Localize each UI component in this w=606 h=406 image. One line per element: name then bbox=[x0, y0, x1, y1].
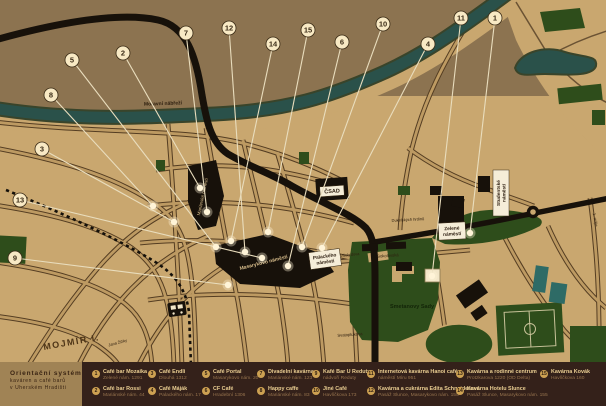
legend-item-name: Kafé Bar U Reduty bbox=[323, 369, 370, 376]
legend-item-name: Café bar Rossi bbox=[103, 386, 145, 393]
destination-dot-12 bbox=[242, 249, 248, 255]
legend-item: 7Divadelní kavárnaMariánské nám. 123 bbox=[257, 369, 314, 382]
destination-dot-14 bbox=[228, 238, 234, 244]
map-marker-15: 15 bbox=[301, 23, 315, 37]
legend-item-address: Havlíčkova 160 bbox=[551, 376, 590, 382]
map-marker-7: 7 bbox=[179, 26, 193, 40]
poster-title-line3: v Uherském Hradišti bbox=[10, 385, 82, 392]
street-label: Smetanovy Sady bbox=[390, 304, 435, 310]
legend-item-number-badge: 3 bbox=[148, 370, 156, 378]
legend-item-name: Kavárna a rodinné centrum bbox=[467, 369, 537, 376]
legend-item: 10Jiné CaféHavlíčkova 173 bbox=[312, 386, 356, 399]
legend-item-number-badge: 11 bbox=[367, 370, 375, 378]
legend-item-address: Mariánské nám. 83 bbox=[268, 393, 310, 399]
destination-dot-13 bbox=[259, 255, 265, 261]
svg-text:11: 11 bbox=[457, 14, 465, 23]
legend-item-address: Masarykovo nám. 20 bbox=[213, 376, 258, 382]
legend-item-number-badge: 2 bbox=[92, 387, 100, 395]
legend-item: 2Café bar RossiMariánské nám. 44 bbox=[92, 386, 145, 399]
roundabout bbox=[529, 208, 538, 217]
svg-text:3: 3 bbox=[40, 145, 44, 154]
svg-text:5: 5 bbox=[70, 56, 74, 65]
destination-dot-9 bbox=[225, 282, 231, 288]
legend-item-name: Happy caffe bbox=[268, 386, 310, 393]
legend-item-number-badge: 7 bbox=[257, 370, 265, 378]
svg-text:15: 15 bbox=[304, 26, 312, 35]
map-marker-14: 14 bbox=[266, 37, 280, 51]
legend-item: 1Café bar MozaikaZelené nám. 1291 bbox=[92, 369, 147, 382]
legend-item: 4Café MájákPalackého nám. 17 bbox=[148, 386, 201, 399]
svg-text:8: 8 bbox=[49, 91, 53, 100]
legend-item-name: Café Portal bbox=[213, 369, 258, 376]
legend-item-address: Palackého nám. 17 bbox=[159, 393, 201, 399]
legend-item: 9Kafé Bar U Redutynádvoří Reduty bbox=[312, 369, 370, 382]
place-label-box: Zelenénáměstí bbox=[438, 222, 466, 240]
legend-item-name: Divadelní kavárna bbox=[268, 369, 314, 376]
map-canvas: Moravní nábřežíMOJMÍR I.Smetanovy SadySo… bbox=[0, 0, 606, 362]
destination-dot-4 bbox=[319, 245, 325, 251]
legend-item-number-badge: 5 bbox=[202, 370, 210, 378]
legend-item: 11Internetová kavárna Hanoi cafénáměstí … bbox=[367, 369, 458, 382]
destination-dot-8 bbox=[150, 203, 156, 209]
map-area: Moravní nábřežíMOJMÍR I.Smetanovy SadySo… bbox=[0, 0, 606, 362]
legend-item: 6CF CaféHradební 1306 bbox=[202, 386, 245, 399]
legend-item-number-badge: 12 bbox=[367, 387, 375, 395]
legend-item-address: Hradební 1306 bbox=[213, 393, 245, 399]
map-marker-1: 1 bbox=[488, 11, 502, 25]
legend-item-name: Café Máják bbox=[159, 386, 201, 393]
map-marker-2: 2 bbox=[116, 46, 130, 60]
map-marker-8: 8 bbox=[44, 88, 58, 102]
running-track bbox=[425, 324, 493, 362]
legend-item-address: Dlouhá 1312 bbox=[159, 376, 187, 382]
svg-text:Studentské: Studentské bbox=[496, 180, 502, 206]
svg-text:náměstí: náměstí bbox=[443, 231, 462, 238]
legend-item: 15Kavárna KovákHavlíčkova 160 bbox=[540, 369, 590, 382]
legend-item: 5Café PortalMasarykovo nám. 20 bbox=[202, 369, 258, 382]
map-marker-4: 4 bbox=[421, 37, 435, 51]
legend-item: 8Happy caffeMariánské nám. 83 bbox=[257, 386, 310, 399]
svg-text:10: 10 bbox=[379, 20, 387, 29]
legend-item-number-badge: 4 bbox=[148, 387, 156, 395]
legend-item-address: náměstí Míru 951 bbox=[378, 376, 458, 382]
svg-text:ČSAD: ČSAD bbox=[324, 187, 340, 195]
legend-item-number-badge: 10 bbox=[312, 387, 320, 395]
place-label-box: Studentskénáměstí bbox=[493, 170, 509, 216]
legend-item-name: CF Café bbox=[213, 386, 245, 393]
legend-item-address: Zelené nám. 1291 bbox=[103, 376, 147, 382]
legend-item-number-badge: 1 bbox=[92, 370, 100, 378]
legend-item-address: Havlíčkova 173 bbox=[323, 393, 356, 399]
legend-item-address: Pasáž Slunce, Masarykovo nám. 155 bbox=[467, 393, 548, 399]
destination-dot-11 bbox=[429, 273, 435, 279]
legend-item-address: nádvoří Reduty bbox=[323, 376, 370, 382]
legend-item-number-badge: 15 bbox=[540, 370, 548, 378]
legend-item: 14Kavárna Hotelu SluncePasáž Slunce, Mas… bbox=[456, 386, 548, 399]
destination-dot-2 bbox=[197, 185, 203, 191]
svg-text:13: 13 bbox=[16, 196, 24, 205]
legend-item-name: Kavárna Hotelu Slunce bbox=[467, 386, 548, 393]
destination-dot-1 bbox=[467, 230, 473, 236]
svg-text:9: 9 bbox=[13, 254, 17, 263]
svg-text:7: 7 bbox=[184, 29, 188, 38]
legend-item-number-badge: 14 bbox=[456, 387, 464, 395]
map-marker-12: 12 bbox=[222, 21, 236, 35]
map-marker-3: 3 bbox=[35, 142, 49, 156]
legend-item-address: Mariánské nám. 44 bbox=[103, 393, 145, 399]
map-marker-9: 9 bbox=[8, 251, 22, 265]
svg-text:12: 12 bbox=[225, 24, 233, 33]
map-marker-11: 11 bbox=[454, 11, 468, 25]
legend-item: 3Café EndliDlouhá 1312 bbox=[148, 369, 187, 382]
legend-item-address: Protzkarova 1220 (OD Delta) bbox=[467, 376, 537, 382]
destination-dot-15 bbox=[265, 229, 271, 235]
map-marker-13: 13 bbox=[13, 193, 27, 207]
legend-item-name: Internetová kavárna Hanoi café bbox=[378, 369, 458, 376]
legend-item-address: Mariánské nám. 123 bbox=[268, 376, 314, 382]
poster-title-line2: kaváren a café barů bbox=[10, 378, 82, 385]
map-marker-6: 6 bbox=[335, 35, 349, 49]
svg-text:2: 2 bbox=[121, 49, 125, 58]
legend-item-number-badge: 9 bbox=[312, 370, 320, 378]
svg-text:náměstí: náměstí bbox=[501, 183, 507, 202]
svg-text:Zelené: Zelené bbox=[444, 225, 460, 232]
destination-dot-5 bbox=[213, 244, 219, 250]
destination-dot-10 bbox=[299, 244, 305, 250]
destination-dot-3 bbox=[171, 219, 177, 225]
legend-item-number-badge: 13 bbox=[456, 370, 464, 378]
bus-station-icon bbox=[167, 301, 187, 317]
legend-item-name: Kavárna Kovák bbox=[551, 369, 590, 376]
legend-item-number-badge: 6 bbox=[202, 387, 210, 395]
legend-item-name: Café Endli bbox=[159, 369, 187, 376]
city-map-poster: Moravní nábřežíMOJMÍR I.Smetanovy SadySo… bbox=[0, 0, 606, 406]
poster-title-line1: Orientační systém bbox=[10, 370, 82, 378]
legend-item-number-badge: 8 bbox=[257, 387, 265, 395]
stadium bbox=[496, 302, 565, 355]
legend-item-name: Jiné Café bbox=[323, 386, 356, 393]
legend-item: 13Kavárna a rodinné centrumProtzkarova 1… bbox=[456, 369, 537, 382]
svg-text:14: 14 bbox=[269, 40, 278, 49]
destination-dot-7 bbox=[204, 209, 210, 215]
svg-text:6: 6 bbox=[340, 38, 344, 47]
poster-title-block: Orientační systém kaváren a café barů v … bbox=[0, 362, 82, 406]
map-marker-10: 10 bbox=[376, 17, 390, 31]
svg-text:1: 1 bbox=[493, 14, 497, 23]
map-marker-5: 5 bbox=[65, 53, 79, 67]
destination-dot-6 bbox=[285, 263, 291, 269]
legend-bar: Orientační systém kaváren a café barů v … bbox=[0, 362, 606, 406]
legend-item-name: Café bar Mozaika bbox=[103, 369, 147, 376]
